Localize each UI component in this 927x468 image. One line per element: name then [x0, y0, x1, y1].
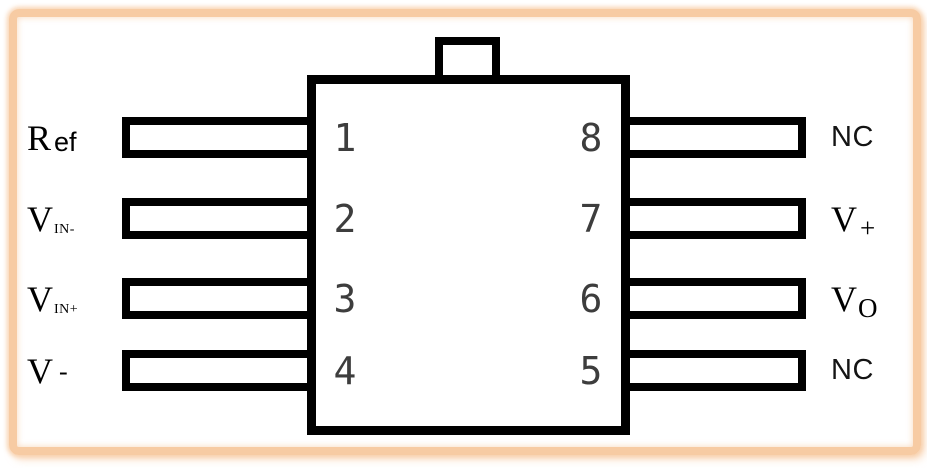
- pin-number-8: 8: [570, 117, 612, 158]
- pin-label-sub: -: [59, 357, 68, 387]
- pin-lead-1: [122, 117, 315, 158]
- pin-label-main: NC: [831, 121, 874, 154]
- pin-label-nc-bottom: NC: [831, 350, 923, 391]
- pin-number-3: 3: [324, 278, 366, 319]
- pin-label-main: V: [27, 201, 53, 237]
- pin-label-vin-minus: VIN-: [27, 198, 122, 239]
- pin-label-main: V: [27, 353, 53, 389]
- pin-label-main: NC: [831, 354, 874, 387]
- pin-label-sub: +: [860, 213, 875, 244]
- pin-label-ref: Ref: [27, 117, 122, 158]
- pin-label-main: V: [27, 281, 53, 317]
- ic-tab-notch: [435, 37, 500, 79]
- pin-number-1: 1: [324, 117, 366, 158]
- pin-lead-3: [122, 278, 315, 319]
- pin-label-sub: IN-: [54, 222, 75, 238]
- ic-pinout-diagram: 1 2 3 4 8 7 6 5 Ref VIN- VIN+ V- NC V+ V…: [0, 0, 927, 468]
- pin-lead-7: [622, 198, 806, 239]
- pin-number-7: 7: [570, 198, 612, 239]
- pin-label-sub: O: [858, 293, 878, 324]
- pin-label-main: R: [27, 120, 51, 156]
- pin-lead-5: [622, 350, 806, 391]
- pin-label-v-minus: V-: [27, 350, 122, 391]
- pin-lead-4: [122, 350, 315, 391]
- pin-label-main: V: [831, 201, 857, 237]
- pin-label-v-plus: V+: [831, 198, 923, 239]
- pin-lead-2: [122, 198, 315, 239]
- pin-label-main: V: [831, 281, 857, 317]
- pin-label-sub: IN+: [54, 302, 78, 318]
- pin-number-6: 6: [570, 278, 612, 319]
- pin-number-5: 5: [570, 350, 612, 391]
- pin-label-nc-top: NC: [831, 117, 923, 158]
- pin-label-vin-plus: VIN+: [27, 278, 122, 319]
- pin-label-sub: ef: [54, 127, 77, 158]
- pin-lead-8: [622, 117, 806, 158]
- pin-lead-6: [622, 278, 806, 319]
- pin-number-2: 2: [324, 198, 366, 239]
- pin-label-vo: VO: [831, 278, 923, 319]
- pin-number-4: 4: [324, 350, 366, 391]
